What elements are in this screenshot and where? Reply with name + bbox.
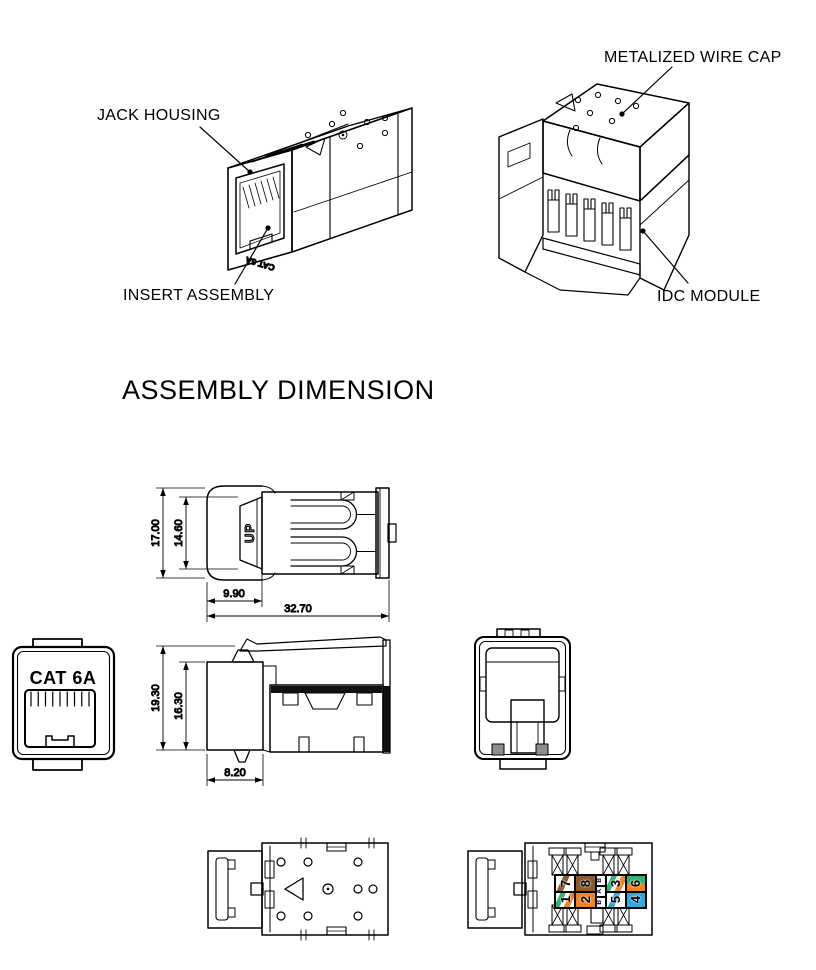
technical-drawing-page: CAT 6A JACK HOUSING INSERT ASSEMBLY	[0, 0, 816, 970]
wire-position-3: 3	[606, 875, 626, 892]
wiring-standard-letter-A: A	[596, 886, 606, 897]
idc-module-label: IDC MODULE	[657, 288, 760, 305]
iso-view-rear	[499, 67, 689, 295]
wire-position-5: 5	[606, 892, 626, 909]
idc-towers	[548, 190, 631, 250]
wiring-standard-letter-B: B	[596, 897, 606, 908]
dim-top-overall-width: 17.00	[150, 519, 162, 547]
wire-position-8: 8	[575, 875, 595, 892]
dim-top-front-depth: 9.90	[223, 588, 244, 600]
iso-view-front-left: CAT 6A	[200, 108, 412, 284]
dim-side-overall-height: 19.30	[150, 684, 162, 712]
wire-position-7: 7	[555, 875, 575, 892]
rear-view	[475, 629, 570, 769]
metalized-wire-cap-label: METALIZED WIRE CAP	[604, 49, 782, 66]
wiring-color-label: 7182BAB3564	[554, 874, 647, 909]
top-view-dimensions: 17.00 14.60 9.90 32.70	[150, 488, 389, 622]
wire-position-6: 6	[626, 875, 646, 892]
dim-top-overall-length: 32.70	[284, 603, 312, 615]
wire-position-4: 4	[626, 892, 646, 909]
dim-top-inner-width: 14.60	[173, 519, 185, 547]
wiring-color-column: 64	[626, 875, 646, 908]
wiring-color-column: 71	[555, 875, 575, 908]
orientation-triangle	[306, 138, 325, 155]
wiring-color-column: 35	[606, 875, 626, 908]
wiring-standard-letter-B: B	[596, 875, 606, 886]
side-view	[207, 637, 390, 762]
plug-latch-notch	[46, 736, 74, 747]
front-view	[13, 639, 114, 770]
wire-position-1: 1	[555, 892, 575, 909]
top-view: UP	[207, 486, 396, 580]
wiring-standard-column: BAB	[596, 875, 606, 908]
orientation-triangle	[556, 94, 575, 111]
front-cat6a-label: CAT 6A	[30, 668, 97, 688]
section-title: ASSEMBLY DIMENSION	[122, 375, 435, 405]
jack-housing-leader-line	[200, 127, 250, 172]
dim-side-front-depth: 8.20	[224, 767, 245, 779]
up-marking: UP	[242, 523, 257, 543]
iso-latch-plate	[252, 141, 314, 162]
dim-side-inner-height: 16.30	[173, 692, 185, 720]
insert-assembly-label: INSERT ASSEMBLY	[123, 287, 274, 304]
drawing-svg: CAT 6A JACK HOUSING INSERT ASSEMBLY	[0, 0, 816, 970]
idc-module-leader-line	[643, 231, 688, 283]
wire-position-2: 2	[575, 892, 595, 909]
bottom-view-plain	[208, 838, 388, 940]
jack-housing-label: JACK HOUSING	[97, 107, 221, 124]
wiring-color-column: 82	[575, 875, 595, 908]
latch-arm	[240, 637, 386, 651]
orientation-triangle	[285, 878, 303, 900]
